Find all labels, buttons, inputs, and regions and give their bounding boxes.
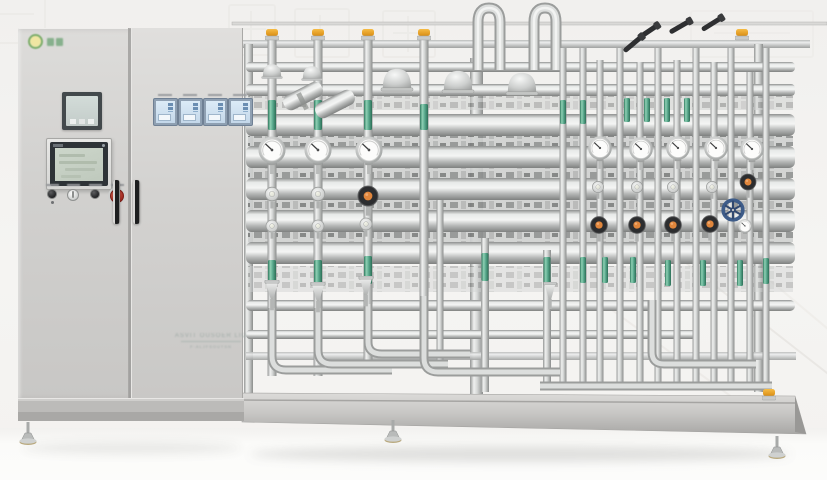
gasket-band — [580, 257, 586, 283]
pipe-cap — [735, 29, 749, 40]
cabinet-door-left[interactable] — [18, 28, 131, 400]
gasket-band — [602, 257, 608, 283]
gasket-band — [630, 257, 636, 283]
gasket-band — [420, 104, 428, 130]
cabinet-base — [18, 398, 244, 421]
gasket-band — [684, 98, 690, 122]
process-controller-3[interactable] — [203, 98, 228, 126]
dome-vessel — [506, 73, 538, 95]
hmi-screen[interactable] — [55, 148, 103, 181]
gasket-band — [624, 98, 630, 122]
door-handle-right[interactable] — [133, 180, 140, 224]
scene: ASVIT OUSOER LIO F·ALJFSOUTSN — [0, 0, 827, 480]
butterfly-valve-lever — [668, 16, 695, 36]
nameplate-line1: ASVIT OUSOER LIO — [171, 333, 251, 339]
u-bend-pipes — [478, 8, 556, 70]
dome-vessel — [442, 71, 474, 93]
pipe-cap — [762, 389, 776, 400]
brand-logo-icon — [28, 34, 43, 49]
power-button[interactable] — [41, 184, 63, 204]
leveling-foot — [20, 422, 37, 445]
hmi-touchscreen[interactable] — [46, 138, 112, 190]
gasket-band — [644, 98, 650, 122]
gasket-band — [664, 98, 670, 122]
leveling-foot — [769, 436, 786, 459]
brand-logo-text — [47, 38, 63, 46]
pipe-vertical — [580, 48, 587, 390]
gasket-band — [700, 260, 706, 286]
pipe-cap — [311, 29, 325, 40]
gasket-band — [737, 260, 743, 286]
dome-vessel — [381, 69, 413, 91]
nameplate-rule — [181, 341, 241, 342]
cabinet-door-right[interactable]: ASVIT OUSOER LIO F·ALJFSOUTSN — [131, 28, 243, 400]
pipe-vertical — [437, 200, 444, 368]
nameplate-line2: F·ALJFSOUTSN — [171, 344, 251, 349]
gasket-band — [544, 257, 551, 285]
door-handle-left[interactable] — [113, 180, 120, 224]
stop-button[interactable] — [84, 184, 106, 199]
panel-meter — [62, 92, 102, 130]
pipe-vertical — [560, 48, 567, 390]
gasket-band — [482, 253, 489, 281]
process-controller-2[interactable] — [178, 98, 203, 126]
process-controller-4[interactable] — [228, 98, 253, 126]
gasket-band — [268, 100, 276, 130]
hmi-power-led — [102, 144, 105, 147]
skid-base-pan — [242, 393, 806, 434]
nameplate: ASVIT OUSOER LIO F·ALJFSOUTSN — [171, 333, 251, 349]
gasket-band — [665, 260, 671, 286]
brand-logo — [28, 34, 63, 49]
pipe-vertical — [763, 48, 770, 388]
pipe-vertical — [693, 48, 700, 390]
pipe-cap — [265, 29, 279, 40]
pipe-cap — [417, 29, 431, 40]
hmi-brand-tag — [53, 144, 63, 147]
gasket-band — [763, 258, 769, 284]
pipe-vertical — [617, 48, 624, 390]
panel-meter-marks — [70, 119, 94, 124]
pipe-cap — [361, 29, 375, 40]
process-controller-1[interactable] — [153, 98, 178, 126]
gasket-band — [580, 100, 586, 124]
hmi-bezel — [50, 142, 108, 186]
control-cabinet: ASVIT OUSOER LIO F·ALJFSOUTSN — [18, 28, 243, 400]
selector-switch[interactable] — [62, 184, 84, 201]
gasket-band — [364, 100, 372, 130]
gasket-band — [560, 100, 566, 124]
